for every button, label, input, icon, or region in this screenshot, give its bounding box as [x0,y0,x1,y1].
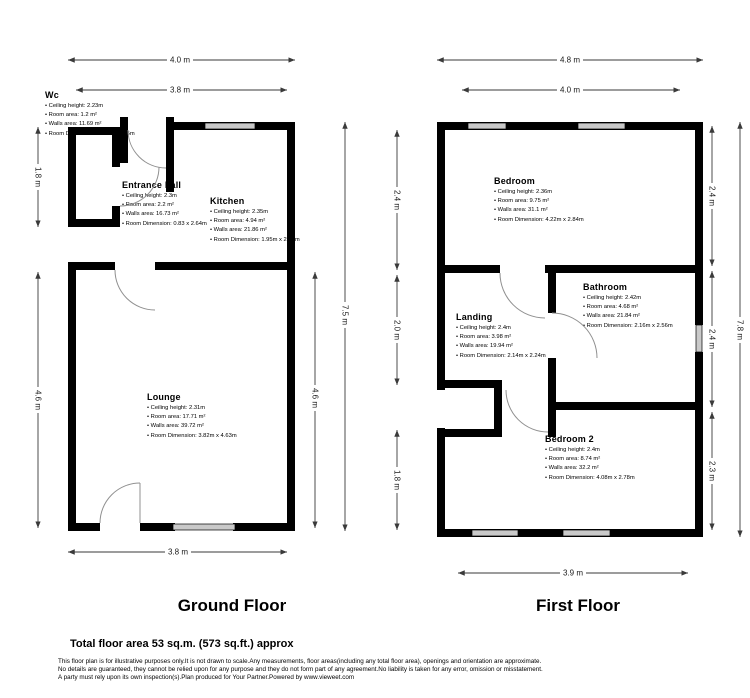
disclaimer-line: No details are guaranteed, they cannot b… [58,666,543,674]
titles-layer: Ground Floor First Floor Total floor are… [0,0,750,698]
ground-floor-title: Ground Floor [122,596,342,616]
floor-plan-page: Wc Ceiling height: 2.23m Room area: 1.2 … [0,0,750,698]
disclaimer-line: This floor plan is for illustrative purp… [58,658,541,666]
first-floor-title: First Floor [468,596,688,616]
disclaimer-line: A party must rely upon its own inspectio… [58,674,354,682]
total-floor-area: Total floor area 53 sq.m. (573 sq.ft.) a… [70,638,294,650]
